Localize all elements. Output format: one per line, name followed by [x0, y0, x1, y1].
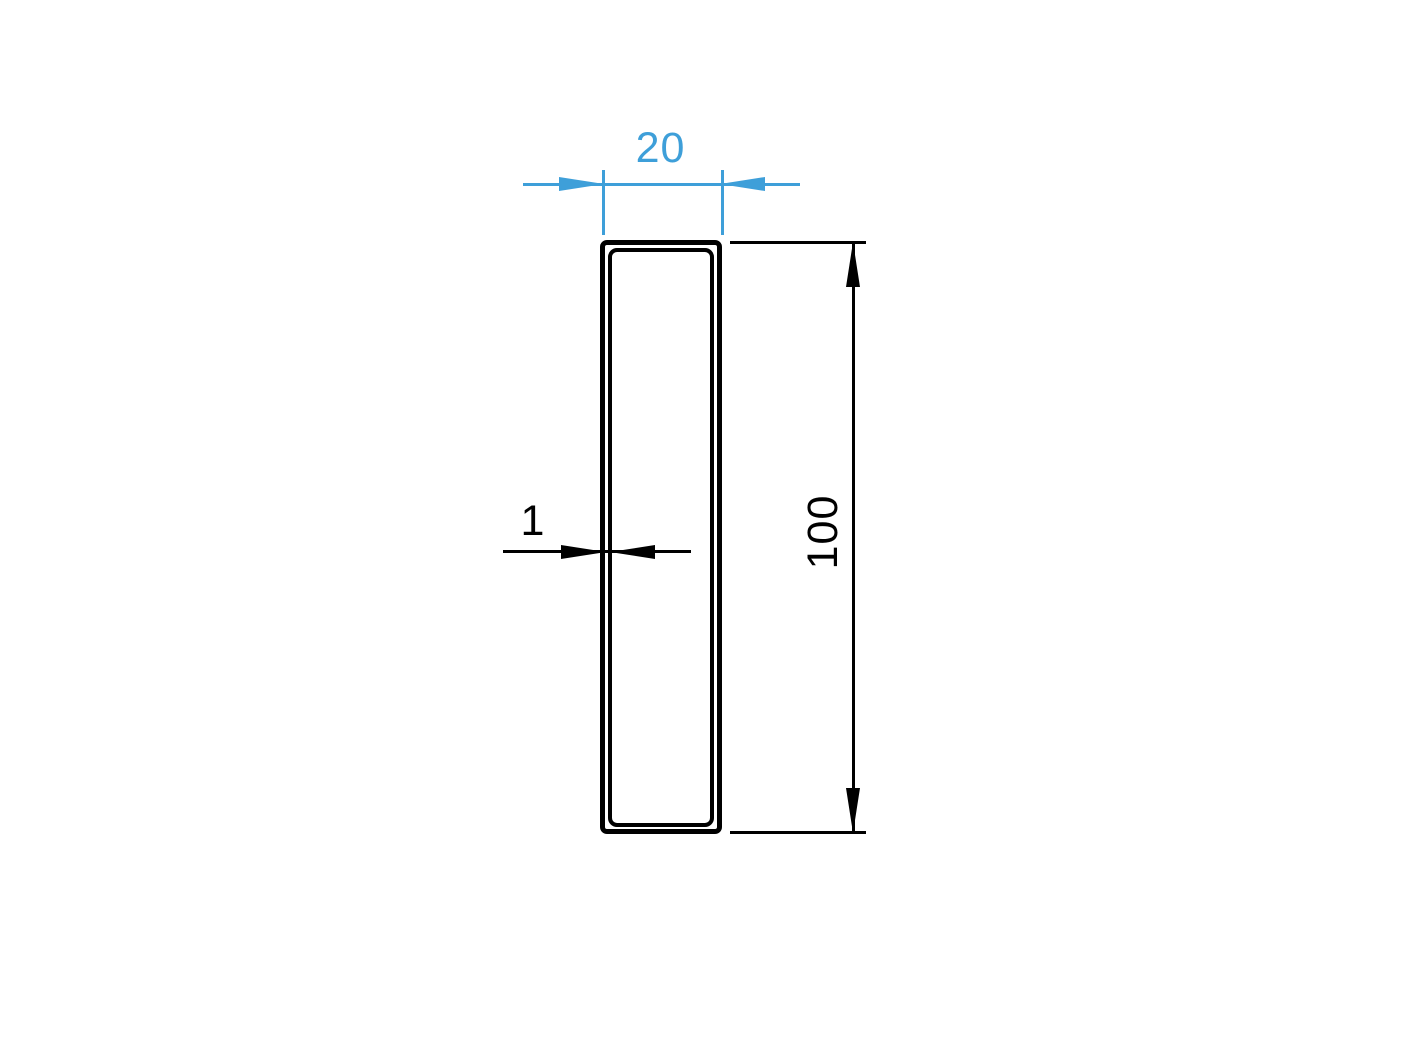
height-dimension-line	[852, 244, 855, 833]
height-dimension-label: 100	[801, 485, 845, 579]
thickness-dimension-label: 1	[515, 499, 551, 543]
thickness-arrow-right-icon	[561, 545, 606, 559]
thickness-arrow-left-icon	[610, 545, 655, 559]
width-dimension-label: 20	[618, 126, 703, 170]
height-arrow-up-icon	[846, 242, 860, 287]
profile-inner-outline	[608, 248, 714, 827]
width-arrow-left-icon	[559, 177, 604, 191]
height-arrow-down-icon	[846, 788, 860, 833]
width-arrow-right-icon	[720, 177, 765, 191]
drawing-canvas: 20 100 1	[0, 0, 1417, 1062]
